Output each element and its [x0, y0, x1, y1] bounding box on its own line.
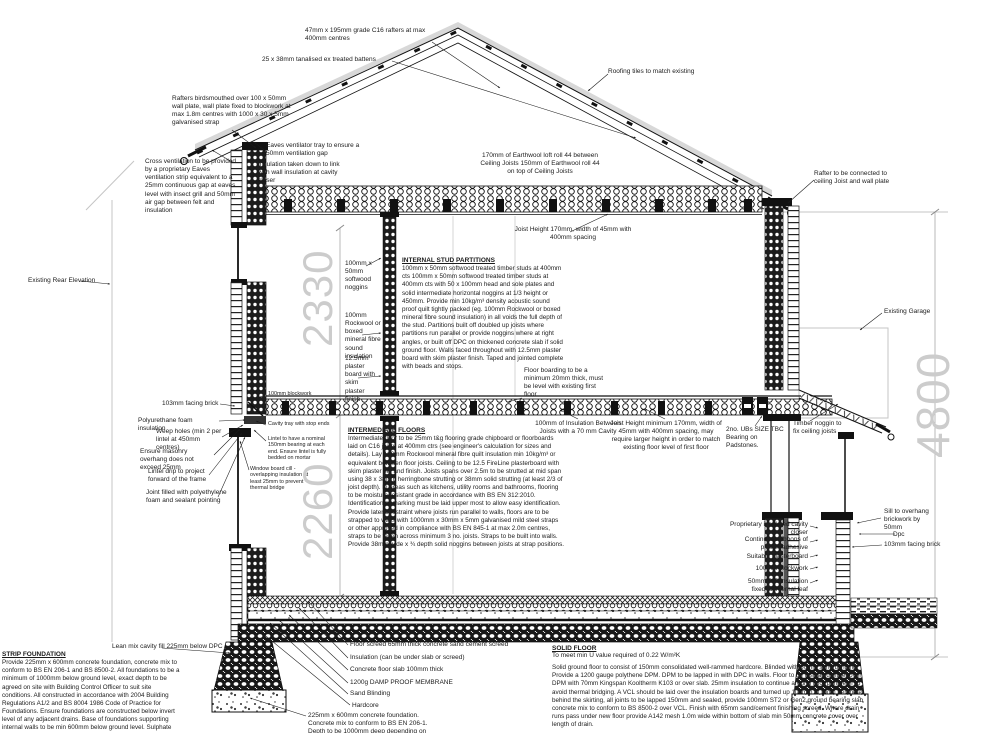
label-plasterboard: 12.5mm plaster board with skim plaster f… — [345, 355, 377, 404]
label-ubs: 2no. UBs SIZE TBC Bearing on Padstones. — [726, 426, 790, 450]
label-facing-brick-right: 103mm facing brick — [884, 541, 942, 549]
label-pir: 50mm PIR insulation fixed to internal le… — [738, 578, 808, 594]
label-rafter-connection: Rafter to be connected to ceiling Joist … — [814, 170, 906, 186]
label-rafters: 47mm x 195mm grade C16 rafters at max 40… — [305, 27, 437, 43]
dimension-overall-height: 4800 — [906, 352, 960, 458]
label-ceiling-joist: Joist Height 170mm, width of 45mm with 4… — [512, 226, 634, 242]
right-wall — [762, 198, 802, 640]
left-wall — [229, 142, 268, 640]
label-existing-garage: Existing Garage — [884, 308, 946, 316]
label-cavity-closer: Proprietary insulated cavity closer — [716, 521, 808, 537]
label-insulation-between-joists: 100mm of Insulation Between Joists with … — [534, 420, 622, 436]
dimension-ground-floor-height: 2260 — [294, 463, 342, 560]
label-roofing-tiles: Roofing tiles to match existing — [608, 68, 703, 76]
note-internal-stud-partitions-body: 100mm x 50mm softwood treated timber stu… — [402, 265, 565, 371]
label-existing-rear-elevation: Existing Rear Elevation — [28, 277, 113, 285]
label-sound-insulation: 100mm Rockwool or boxed mineral fibre so… — [345, 312, 381, 361]
label-joint-filled: Joint filled with polyethylene foam and … — [146, 489, 228, 505]
construction-section-sheet: 47mm x 195mm grade C16 rafters at max 40… — [0, 0, 982, 733]
label-blockwork-right: 100mm blockwork — [748, 565, 808, 573]
label-birdsmouth: Rafters birdsmouthed over 100 x 50mm wal… — [172, 95, 294, 128]
note-strip-foundation-body: Provide 225mm x 600mm concrete foundatio… — [2, 659, 180, 733]
note-intermediate-floors-heading: INTERMEDIATE FLOORS — [348, 427, 488, 435]
dimension-first-floor-height: 2330 — [294, 250, 342, 347]
label-floor-boarding: Floor boarding to be a minimum 20mm thic… — [524, 367, 606, 400]
label-timber-noggin: Timber noggin to fix ceiling joists — [793, 420, 847, 436]
note-solid-floor-body: Solid ground floor to consist of 150mm c… — [552, 664, 864, 729]
note-strip-foundation-heading: STRIP FOUNDATION — [2, 651, 112, 659]
label-facing-brick-left: 103mm facing brick — [162, 400, 220, 408]
label-lean-mix: Lean mix cavity fill 225mm below DPC — [112, 643, 230, 651]
label-hardcore: Hardcore — [352, 702, 412, 710]
label-dpm: 1200g DAMP PROOF MEMBRANE — [350, 679, 490, 687]
label-lintel-drip: Lintel drip to project forward of the fr… — [148, 468, 220, 484]
label-plaster-ribbons: Continuous ribbons of plaster adhesive — [728, 536, 808, 552]
ceiling-insulation — [266, 186, 762, 215]
label-lintel-bearing: Lintel to have a nominal 150mm bearing a… — [268, 436, 328, 462]
label-noggins: 100mm x 50mm softwood noggins — [345, 260, 379, 293]
label-foundation-note: 225mm x 600mm concrete foundation. Concr… — [308, 712, 434, 733]
label-floor-slab: Concrete floor slab 100mm thick — [350, 666, 490, 674]
label-cavity-tray: Cavity tray with stop ends — [268, 421, 330, 427]
note-intermediate-floors-body: Intermediate floor to be 25mm t&g floori… — [348, 435, 564, 549]
label-suitable-plasterboard: Suitable plasterboard — [744, 553, 808, 561]
label-floor-screed: Floor screed 65mm thick concrete sand ce… — [350, 641, 520, 649]
label-earthwool: 170mm of Earthwool loft roll 44 between … — [478, 152, 602, 176]
ground-floor — [238, 596, 854, 642]
note-internal-stud-partitions-heading: INTERNAL STUD PARTITIONS — [402, 257, 567, 265]
label-sand-blinding: Sand Blinding — [350, 690, 440, 698]
label-eaves-tray: Eaves ventilator tray to ensure a 50mm v… — [266, 142, 374, 158]
label-battens: 25 x 38mm tanalised ex treated battens — [262, 56, 394, 64]
note-solid-floor-subheading: To meet min U value required of 0.22 W/m… — [552, 652, 772, 660]
label-dpc: Dpc — [893, 531, 923, 539]
label-cross-ventilation: Cross ventilation to be provided by a pr… — [145, 158, 238, 215]
label-blockwork-left: 100mm blockwork — [268, 391, 330, 397]
label-floor-joist: Joist Height minimum 170mm, width of 45m… — [610, 420, 722, 453]
label-floor-insulation: Insulation (can be under slab or screed) — [350, 654, 510, 662]
label-sill-overhang: Sill to overhang brickwork by 50mm — [884, 508, 936, 532]
label-insulation-link: Insulation taken down to link with wall … — [258, 161, 340, 185]
